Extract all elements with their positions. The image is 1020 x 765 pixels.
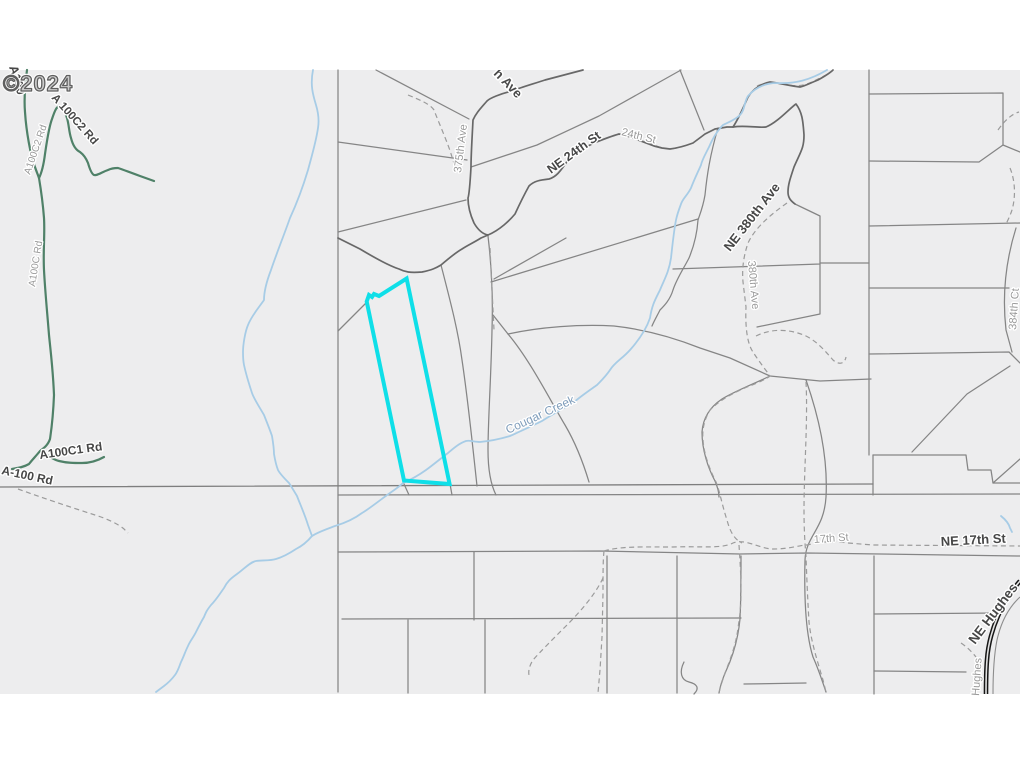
svg-text:©2024: ©2024	[3, 71, 73, 96]
svg-text:17th St: 17th St	[813, 532, 849, 546]
svg-text:384th Ct: 384th Ct	[1007, 288, 1020, 330]
